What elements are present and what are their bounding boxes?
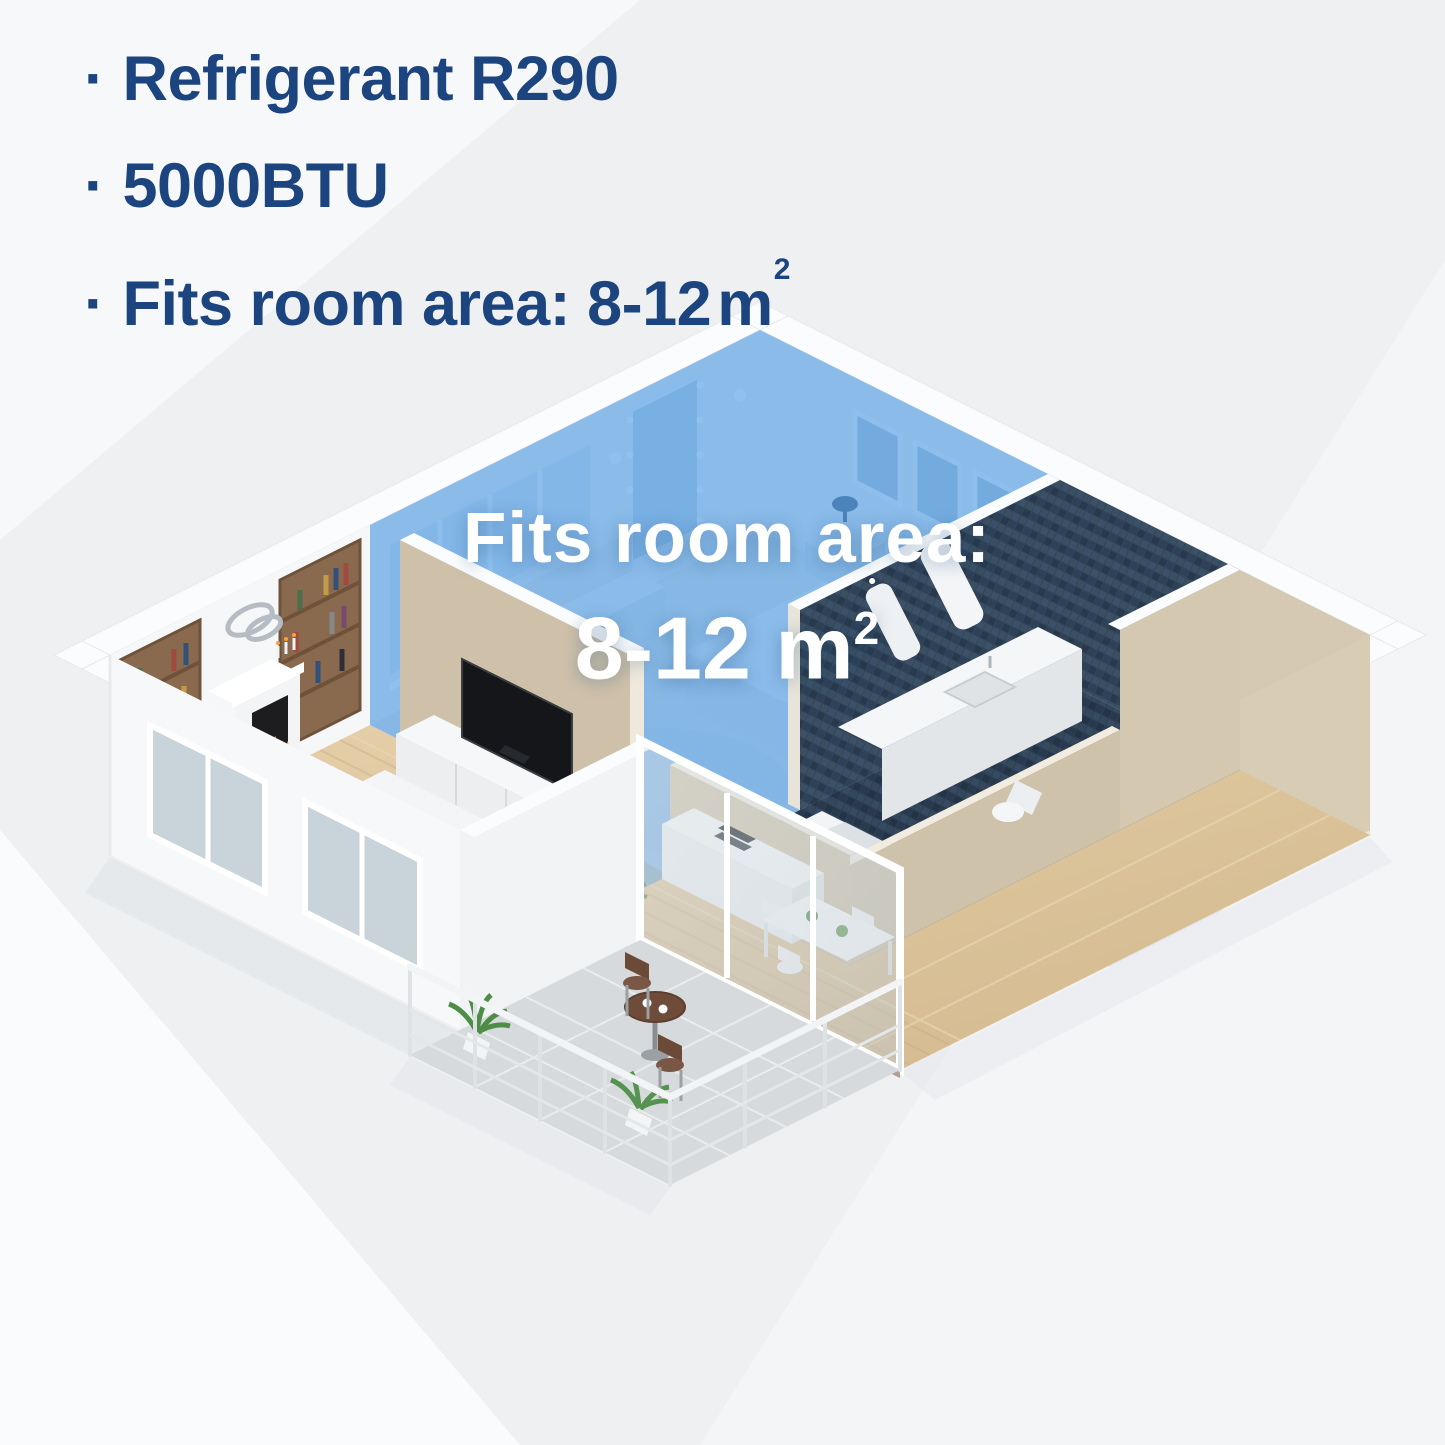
spec-item: · Fits room area: 8-12 m2 <box>84 240 789 358</box>
spec-label: 5000BTU <box>122 133 388 240</box>
product-infographic: · Refrigerant R290 · 5000BTU · Fits room… <box>0 0 1445 1445</box>
bullet-dot: · <box>84 133 104 240</box>
coffee-cup <box>659 1005 668 1014</box>
room-area-label: Fits room area: 8-12 m2 <box>463 500 991 696</box>
room-area-line1: Fits room area: <box>463 500 991 578</box>
spec-list: · Refrigerant R290 · 5000BTU · Fits room… <box>84 26 789 358</box>
bullet-dot: · <box>84 26 104 133</box>
spec-item: · 5000BTU <box>84 133 789 240</box>
bullet-dot: · <box>84 251 104 358</box>
spec-item: · Refrigerant R290 <box>84 26 789 133</box>
spec-label: Fits room area: 8-12 <box>122 251 711 358</box>
unit-m2: m2 <box>717 240 789 358</box>
spec-label: Refrigerant R290 <box>122 26 618 133</box>
room-area-line2: 8-12 m2 <box>463 584 991 696</box>
